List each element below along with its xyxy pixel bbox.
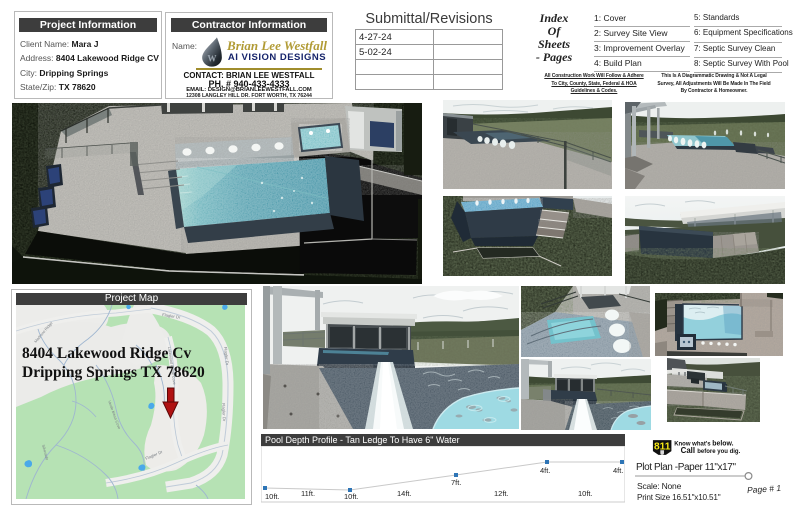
svg-text:4ft.: 4ft. bbox=[540, 466, 550, 475]
svg-text:10ft.: 10ft. bbox=[265, 492, 280, 501]
svg-text:W: W bbox=[207, 53, 216, 63]
svg-text:11ft.: 11ft. bbox=[301, 489, 315, 498]
svg-text:14ft.: 14ft. bbox=[397, 489, 412, 498]
svg-text:10ft.: 10ft. bbox=[578, 489, 593, 498]
svg-text:12ft.: 12ft. bbox=[494, 489, 509, 498]
svg-text:10ft.: 10ft. bbox=[344, 492, 359, 501]
svg-text:7ft.: 7ft. bbox=[451, 478, 461, 487]
svg-text:Flagler Dr: Flagler Dr bbox=[221, 403, 227, 422]
svg-text:4ft.: 4ft. bbox=[613, 466, 623, 475]
